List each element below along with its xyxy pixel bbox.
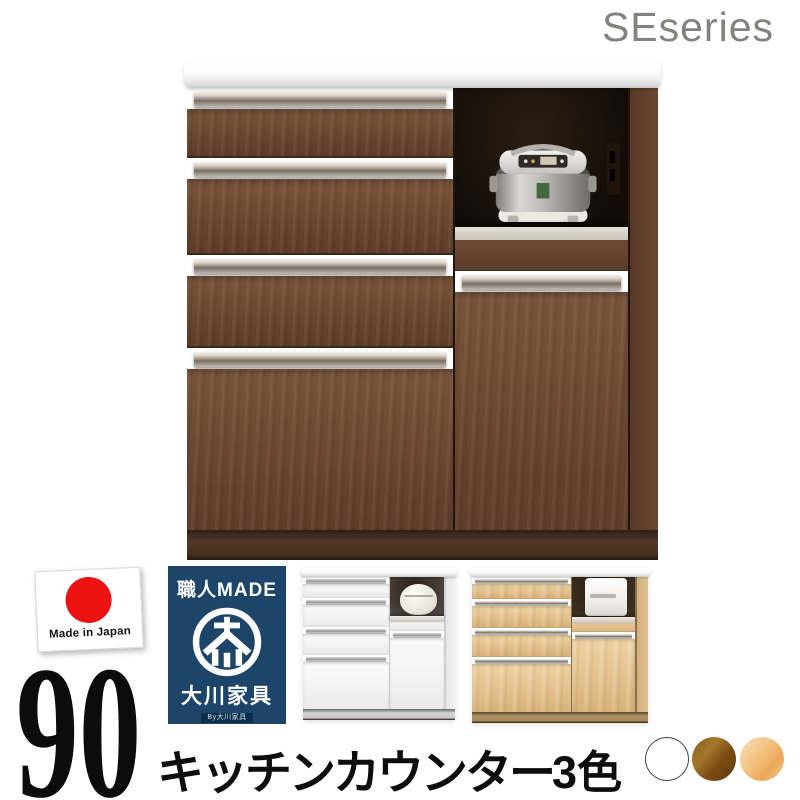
main-product-image: [187, 60, 658, 560]
door-handle: [462, 275, 621, 290]
drawer: [472, 657, 571, 712]
cabinet-side-panel: [635, 577, 648, 712]
appliance-column: [455, 88, 628, 530]
rice-cooker-image: [585, 578, 627, 616]
cabinet-countertop: [301, 568, 457, 577]
cabinet-body: [303, 577, 455, 709]
door-face: [455, 292, 628, 530]
cabinet-countertop: [184, 60, 661, 88]
okawa-kagu-sub-label: By大川家具: [201, 713, 252, 723]
cabinet-door: [390, 622, 444, 709]
drawer: [303, 627, 389, 655]
variant-natural-image: [472, 568, 648, 723]
cabinet-countertop: [470, 568, 650, 577]
okawa-kagu-label: 大川家具: [181, 680, 273, 710]
drawer-handle: [475, 659, 568, 663]
okawa-kagu-logo-icon: [191, 606, 263, 678]
drawer-face: [187, 276, 453, 346]
drawer-handle: [194, 162, 446, 177]
drawer: [303, 577, 389, 598]
cabinet-side-panel: [628, 88, 658, 530]
drawer-face: [187, 179, 453, 253]
drawer: [187, 255, 453, 348]
compartment-shelf: [390, 616, 444, 622]
drawer-handle: [475, 601, 568, 605]
drawer: [472, 599, 571, 629]
drawer-handle: [475, 579, 568, 583]
cabinet-door: [455, 240, 628, 530]
door-rail: [390, 622, 444, 631]
color-swatch-natural: [740, 737, 784, 781]
drawer-handle: [306, 629, 386, 633]
drawer-column: [472, 577, 571, 712]
drawer: [187, 88, 453, 158]
drawer-face: [187, 109, 453, 156]
door-rail: [455, 240, 628, 271]
japan-flag-icon: [65, 576, 113, 624]
cabinet-kickboard: [472, 712, 648, 723]
compartment-shelf: [455, 227, 628, 240]
drawer: [303, 655, 389, 709]
drawer-face: [303, 662, 389, 709]
drawer: [472, 577, 571, 599]
drawer-face: [472, 664, 571, 712]
drawer: [187, 348, 453, 530]
drawer-handle: [306, 579, 386, 583]
open-shelf-compartment: [572, 577, 635, 623]
compartment-shelf: [572, 617, 635, 623]
door-face: [390, 638, 444, 709]
cabinet-body: [187, 88, 658, 530]
drawer-face: [303, 605, 389, 626]
door-handle: [393, 633, 441, 637]
power-outlet: [607, 143, 620, 195]
drawer-face: [303, 584, 389, 597]
product-name-label: キッチンカウンター: [157, 734, 553, 800]
drawer-handle: [194, 352, 446, 367]
drawer: [472, 628, 571, 656]
door-rail: [572, 623, 635, 632]
craftsman-made-label: 職人MADE: [177, 575, 277, 602]
drawer-face: [472, 635, 571, 655]
drawer-face: [472, 606, 571, 628]
product-banner: SEseries: [0, 0, 800, 800]
series-label: SEseries: [602, 4, 774, 51]
door-face: [572, 639, 635, 712]
drawer-handle: [306, 657, 386, 661]
variant-white-image: [303, 568, 455, 720]
appliance-column: [572, 577, 635, 712]
drawer-face: [472, 584, 571, 598]
cabinet-door: [572, 623, 635, 712]
drawer-handle: [194, 259, 446, 274]
drawer-handle: [306, 600, 386, 604]
open-shelf-compartment: [455, 88, 628, 240]
drawer-column: [187, 88, 453, 530]
cabinet-kickboard: [187, 530, 658, 560]
drawer-handle: [194, 92, 446, 107]
size-label: 90: [16, 638, 141, 800]
drawer: [187, 158, 453, 255]
cabinet-side-panel: [444, 577, 455, 709]
drawer-column: [303, 577, 389, 709]
open-shelf-compartment: [390, 577, 444, 622]
cabinet-kickboard: [303, 709, 455, 720]
drawer-handle: [475, 630, 568, 634]
appliance-column: [390, 577, 444, 709]
color-count-label: 3色: [552, 736, 622, 800]
drawer-face: [303, 634, 389, 654]
color-swatch-brown: [692, 737, 736, 781]
color-swatch-white: [645, 737, 689, 781]
cabinet-body: [472, 577, 648, 712]
drawer-face: [187, 369, 453, 530]
door-handle: [575, 634, 632, 638]
drawer: [303, 598, 389, 627]
rice-cooker-image: [484, 137, 602, 229]
craftsman-badge: 職人MADE 大川家具 By大川家具: [168, 566, 286, 724]
rice-cooker-image: [400, 584, 437, 615]
